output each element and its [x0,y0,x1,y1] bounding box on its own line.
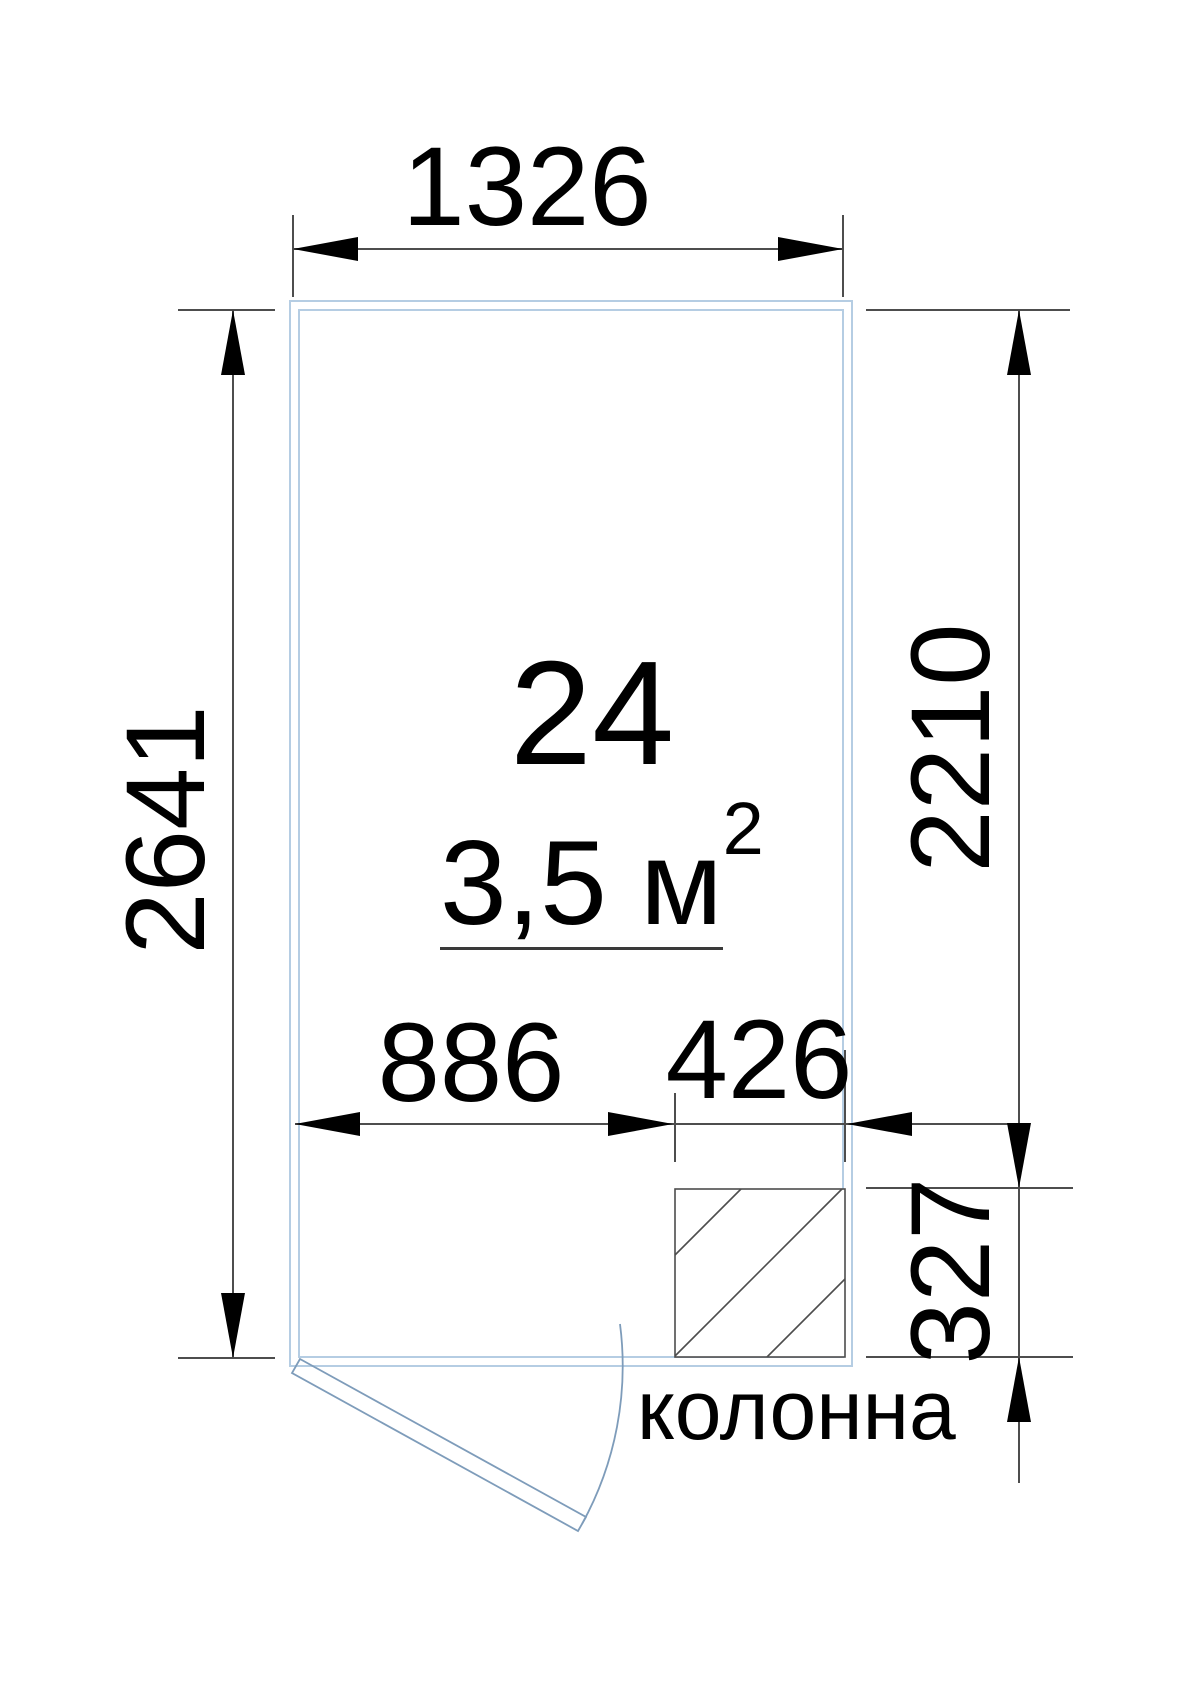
room-area-sup-exponent: 2 [723,787,764,870]
room-area: 3,5 м2 [440,792,764,950]
dim-left-height: 2641 [110,705,222,954]
room-area-value: 3,5 м [440,823,723,950]
door-swing-arc [582,1324,623,1524]
door [292,1324,623,1531]
dim-right-height-upper: 2210 [895,623,1007,872]
room-number: 24 [510,640,675,788]
dim-bottom-left-width: 886 [378,1007,565,1119]
column-hatch [675,1189,845,1357]
dim-bottom-right-width: 426 [666,1004,853,1116]
dim-top-width: 1326 [402,131,651,243]
door-leaf [292,1359,586,1531]
floor-plan-canvas: 1326 2641 2210 327 886 426 24 3,5 м2 кол… [0,0,1200,1697]
dim-right-height-lower: 327 [895,1178,1007,1365]
column-label: колонна [637,1368,956,1452]
